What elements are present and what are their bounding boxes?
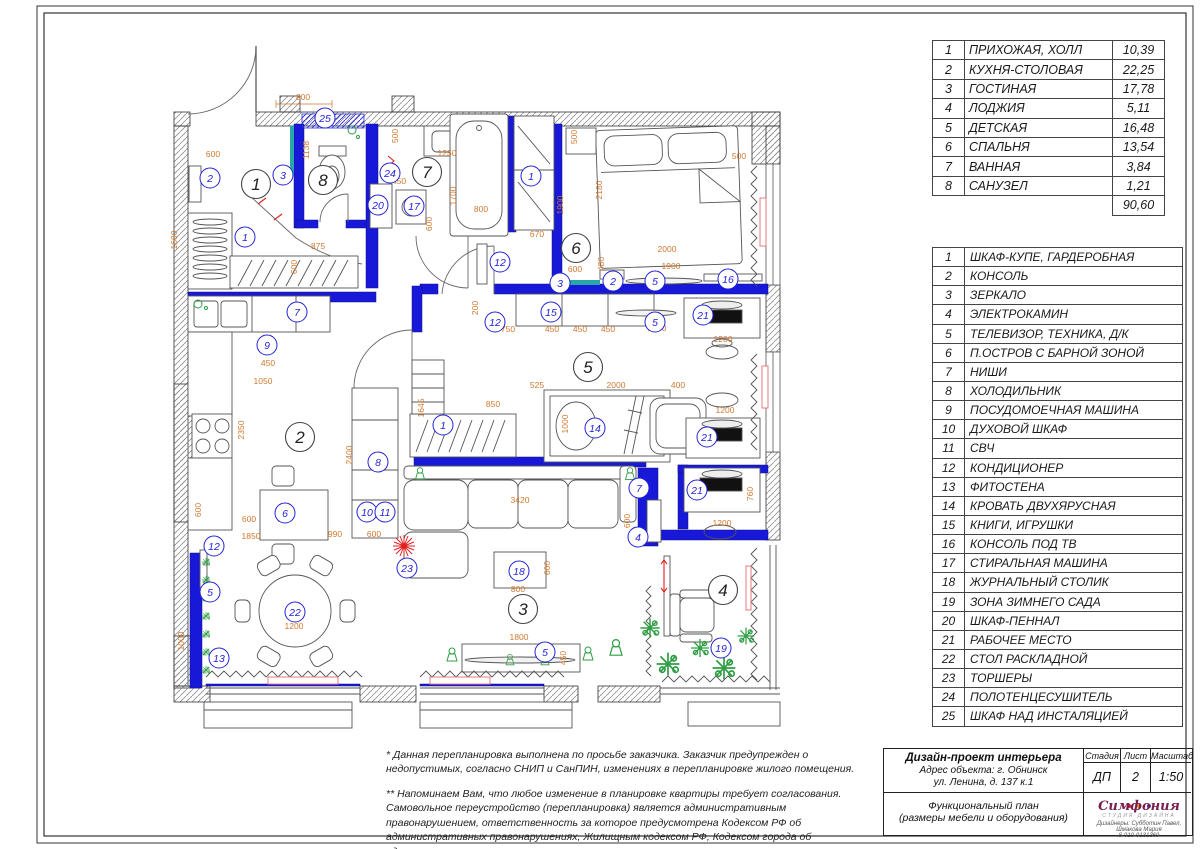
blank-cell — [933, 196, 1113, 215]
legend-table-cell: 25 — [933, 707, 965, 726]
rooms-table-cell: САНУЗЕЛ — [965, 176, 1113, 195]
legend-table-row: 15КНИГИ, ИГРУШКИ — [933, 515, 1183, 534]
legend-table-row: 14КРОВАТЬ ДВУХЯРУСНАЯ — [933, 496, 1183, 515]
item-number-label: 23 — [400, 563, 413, 575]
legend-table-cell: КОНСОЛЬ ПОД ТВ — [965, 535, 1183, 554]
legend-table-cell: 11 — [933, 439, 965, 458]
rooms-table-cell: 7 — [933, 157, 965, 176]
legend-table-row: 3ЗЕРКАЛО — [933, 286, 1183, 305]
studio-phone: 8-910-9131369 — [1084, 833, 1194, 840]
legend-table-cell: 4 — [933, 305, 965, 324]
studio-logo: Симфония СТУДИЯ ДИЗАЙНА Дизайнеры: Суббо… — [1084, 793, 1194, 835]
item-number-label: 10 — [361, 507, 373, 519]
rooms-table-cell: 16,48 — [1113, 118, 1165, 137]
dimension-label: 2000 — [658, 244, 677, 254]
legend-table-cell: КНИГИ, ИГРУШКИ — [965, 515, 1183, 534]
legend-table-cell: СТИРАЛЬНАЯ МАШИНА — [965, 554, 1183, 573]
item-number-label: 1 — [528, 171, 534, 183]
legend-table-row: 13ФИТОСТЕНА — [933, 477, 1183, 496]
dimension-label: 800 — [474, 204, 488, 214]
item-number-label: 4 — [635, 532, 641, 544]
dimension-label: 600 — [242, 514, 256, 524]
dimension-label: 1700 — [448, 186, 458, 205]
rooms-table-cell: 1,21 — [1113, 176, 1165, 195]
legend-table-cell: ШКАФ НАД ИНСТАЛЯЦИЕЙ — [965, 707, 1183, 726]
dimension-label: 1600 — [169, 230, 179, 249]
legend-table-cell: П.ОСТРОВ С БАРНОЙ ЗОНОЙ — [965, 343, 1183, 362]
legend-table-row: 22СТОЛ РАСКЛАДНОЙ — [933, 649, 1183, 668]
item-number-label: 6 — [282, 508, 288, 520]
legend-table-cell: 15 — [933, 515, 965, 534]
title-block: Дизайн-проект интерьера Адрес объекта: г… — [883, 748, 1193, 836]
legend-table-cell: 17 — [933, 554, 965, 573]
dimension-label: 400 — [671, 380, 685, 390]
legend-table-cell: ТЕЛЕВИЗОР, ТЕХНИКА, Д/К — [965, 324, 1183, 343]
rooms-table-cell: 1 — [933, 41, 965, 60]
rooms-table-cell: СПАЛЬНЯ — [965, 137, 1113, 156]
rooms-table-cell: 22,25 — [1113, 60, 1165, 79]
dimension-label: 1200 — [285, 621, 304, 631]
legend-table-cell: НИШИ — [965, 362, 1183, 381]
legend-table-cell: ЖУРНАЛЬНЫЙ СТОЛИК — [965, 573, 1183, 592]
project-address-line2: ул. Ленина, д. 137 к.1 — [884, 777, 1083, 788]
item-number-label: 16 — [722, 274, 734, 286]
rooms-table-cell: ВАННАЯ — [965, 157, 1113, 176]
item-number-label: 1 — [242, 232, 248, 244]
note-1: * Данная перепланировка выполнена по про… — [386, 748, 860, 777]
dimension-label: 2000 — [607, 380, 626, 390]
dimension-label: 1000 — [560, 414, 570, 433]
rooms-table-cell: 17,78 — [1113, 79, 1165, 98]
legend-table-row: 25ШКАФ НАД ИНСТАЛЯЦИЕЙ — [933, 707, 1183, 726]
furniture-legend-table: 1ШКАФ-КУПЕ, ГАРДЕРОБНАЯ2КОНСОЛЬ3ЗЕРКАЛО4… — [932, 247, 1183, 727]
dimension-label: 500 — [732, 151, 746, 161]
rooms-table-row: 1ПРИХОЖАЯ, ХОЛЛ10,39 — [933, 41, 1165, 60]
rooms-table-cell: 6 — [933, 137, 965, 156]
item-number-label: 1 — [440, 420, 446, 432]
legend-table-row: 17СТИРАЛЬНАЯ МАШИНА — [933, 554, 1183, 573]
legend-table-cell: ЗЕРКАЛО — [965, 286, 1183, 305]
dimension-label: 850 — [486, 399, 500, 409]
item-number-label: 3 — [280, 170, 286, 182]
dimension-label: 1200 — [716, 405, 735, 415]
item-number-label: 11 — [380, 507, 391, 519]
rooms-table-cell: ДЕТСКАЯ — [965, 118, 1113, 137]
studio-name: Симфония — [1084, 801, 1194, 812]
legend-table-row: 23ТОРШЕРЫ — [933, 669, 1183, 688]
dimension-label: 450 — [558, 651, 568, 665]
dimension-label: 1138 — [301, 141, 311, 160]
rooms-table-cell: 4 — [933, 99, 965, 118]
dimension-label: 600 — [622, 514, 632, 528]
legend-table-row: 12КОНДИЦИОНЕР — [933, 458, 1183, 477]
rooms-table-cell: 3,84 — [1113, 157, 1165, 176]
dimension-label: 800 — [511, 584, 525, 594]
dimension-label: 480 — [596, 257, 606, 271]
total-area-value: 90,60 — [1113, 196, 1165, 215]
rooms-table-row: 8САНУЗЕЛ1,21 — [933, 176, 1165, 195]
dimension-label: 450 — [545, 324, 559, 334]
legend-table-cell: 21 — [933, 630, 965, 649]
legend-table-cell: ПОЛОТЕНЦЕСУШИТЕЛЬ — [965, 688, 1183, 707]
dimension-label: 600 — [568, 264, 582, 274]
legend-table-cell: 23 — [933, 669, 965, 688]
rooms-table-cell: 5 — [933, 118, 965, 137]
scale-value: 1:50 — [1151, 763, 1191, 793]
legend-table-cell: 12 — [933, 458, 965, 477]
dimension-label: 200 — [470, 301, 480, 315]
legend-table-cell: ПОСУДОМОЕЧНАЯ МАШИНА — [965, 401, 1183, 420]
rooms-table-row: 7ВАННАЯ3,84 — [933, 157, 1165, 176]
dimension-label: 2350 — [236, 420, 246, 439]
legend-table-row: 5ТЕЛЕВИЗОР, ТЕХНИКА, Д/К — [933, 324, 1183, 343]
legend-table-cell: ЭЛЕКТРОКАМИН — [965, 305, 1183, 324]
item-number-label: 2 — [609, 276, 616, 288]
item-number-label: 9 — [264, 340, 270, 352]
item-number-label: 5 — [652, 276, 658, 288]
legend-table-cell: ШКАФ-ПЕННАЛ — [965, 611, 1183, 630]
dimension-label: 1050 — [254, 376, 273, 386]
dimension-label: 2400 — [344, 445, 354, 464]
drawing-sheet: 8006001138500125045017008006005001900670… — [0, 0, 1200, 849]
legend-table-row: 16КОНСОЛЬ ПОД ТВ — [933, 535, 1183, 554]
dimension-label: 1900 — [555, 195, 565, 214]
dimension-label: 600 — [193, 503, 203, 517]
dimension-label: 600 — [206, 149, 220, 159]
item-number-label: 8 — [375, 457, 381, 469]
legend-table-cell: 6 — [933, 343, 965, 362]
scale-label: Масштаб — [1151, 749, 1191, 763]
legend-table-row: 19ЗОНА ЗИМНЕГО САДА — [933, 592, 1183, 611]
room-number-label: 7 — [422, 163, 432, 182]
legend-table-row: 7НИШИ — [933, 362, 1183, 381]
legend-table-cell: 10 — [933, 420, 965, 439]
legend-table-cell: 16 — [933, 535, 965, 554]
legend-table-cell: КОНСОЛЬ — [965, 267, 1183, 286]
legend-table-row: 6П.ОСТРОВ С БАРНОЙ ЗОНОЙ — [933, 343, 1183, 362]
room-number-label: 8 — [318, 171, 328, 190]
dimension-label: 1250 — [438, 148, 457, 158]
item-number-label: 12 — [489, 317, 501, 329]
item-number-label: 3 — [557, 278, 563, 290]
rooms-table-row: 5ДЕТСКАЯ16,48 — [933, 118, 1165, 137]
legend-table-cell: КОНДИЦИОНЕР — [965, 458, 1183, 477]
rooms-table-row: 2КУХНЯ-СТОЛОВАЯ22,25 — [933, 60, 1165, 79]
legend-table-row: 10ДУХОВОЙ ШКАФ — [933, 420, 1183, 439]
rooms-table-total-row: 90,60 — [933, 196, 1165, 215]
legend-table-cell: 5 — [933, 324, 965, 343]
legend-table-row: 9ПОСУДОМОЕЧНАЯ МАШИНА — [933, 401, 1183, 420]
dimension-label: 525 — [530, 380, 544, 390]
dimension-label: 800 — [296, 92, 310, 102]
dimension-label: 450 — [601, 324, 615, 334]
floor-lamp-icon — [393, 535, 415, 557]
document-name-line2: (размеры мебели и оборудования) — [884, 812, 1083, 824]
document-name-line1: Функциональный план — [884, 800, 1083, 812]
item-number-label: 17 — [408, 201, 421, 213]
legend-table-row: 24ПОЛОТЕНЦЕСУШИТЕЛЬ — [933, 688, 1183, 707]
item-number-label: 5 — [207, 587, 213, 599]
dimension-label: 1000 — [176, 631, 186, 650]
item-number-label: 12 — [494, 257, 506, 269]
rooms-area-table: 1ПРИХОЖАЯ, ХОЛЛ10,392КУХНЯ-СТОЛОВАЯ22,25… — [932, 40, 1165, 216]
dimension-label: 670 — [530, 229, 544, 239]
stage-label: Стадия — [1084, 749, 1121, 763]
legend-table-cell: ДУХОВОЙ ШКАФ — [965, 420, 1183, 439]
dimension-label: 1200 — [714, 334, 733, 344]
item-number-label: 21 — [690, 485, 703, 497]
note-2: ** Напоминаем Вам, что любое изменение в… — [386, 787, 860, 849]
room-number-label: 5 — [583, 358, 593, 377]
item-number-label: 24 — [383, 168, 396, 180]
dimension-label: 600 — [289, 260, 299, 274]
document-name-cell: Функциональный план (размеры мебели и об… — [884, 793, 1084, 835]
item-number-label: 18 — [513, 566, 525, 578]
legend-table-row: 20ШКАФ-ПЕННАЛ — [933, 611, 1183, 630]
project-title: Дизайн-проект интерьера — [884, 752, 1083, 764]
item-number-label: 22 — [288, 607, 301, 619]
dimension-label: 500 — [569, 130, 579, 144]
room-number-label: 1 — [251, 175, 260, 194]
legend-table-cell: 1 — [933, 248, 965, 267]
project-title-cell: Дизайн-проект интерьера Адрес объекта: г… — [884, 749, 1084, 793]
rooms-table-row: 3ГОСТИНАЯ17,78 — [933, 79, 1165, 98]
item-number-label: 13 — [213, 653, 225, 665]
rooms-table-row: 6СПАЛЬНЯ13,54 — [933, 137, 1165, 156]
legend-table-row: 21РАБОЧЕЕ МЕСТО — [933, 630, 1183, 649]
legend-table-row: 2КОНСОЛЬ — [933, 267, 1183, 286]
dimension-label: 600 — [367, 529, 381, 539]
rooms-table-cell: 8 — [933, 176, 965, 195]
legend-table-row: 1ШКАФ-КУПЕ, ГАРДЕРОБНАЯ — [933, 248, 1183, 267]
dimension-label: 600 — [542, 561, 552, 575]
item-number-label: 5 — [652, 317, 658, 329]
dimension-label: 1850 — [242, 531, 261, 541]
legend-table-cell: 19 — [933, 592, 965, 611]
notes: * Данная перепланировка выполнена по про… — [386, 748, 860, 849]
legend-table-cell: 18 — [933, 573, 965, 592]
dimension-label: 2180 — [594, 180, 604, 199]
legend-table-cell: 13 — [933, 477, 965, 496]
rooms-table-cell: 5,11 — [1113, 99, 1165, 118]
dimension-label: 600 — [424, 217, 434, 231]
legend-table-cell: 24 — [933, 688, 965, 707]
dimension-label: 875 — [311, 241, 325, 251]
item-number-label: 15 — [545, 307, 557, 319]
dimension-label: 450 — [573, 324, 587, 334]
legend-table-row: 18ЖУРНАЛЬНЫЙ СТОЛИК — [933, 573, 1183, 592]
dimension-label: 500 — [390, 129, 400, 143]
item-number-label: 25 — [318, 113, 331, 125]
legend-table-cell: ТОРШЕРЫ — [965, 669, 1183, 688]
legend-table-cell: 8 — [933, 381, 965, 400]
rooms-table-cell: ПРИХОЖАЯ, ХОЛЛ — [965, 41, 1113, 60]
rooms-table-cell: 13,54 — [1113, 137, 1165, 156]
room-number-label: 2 — [294, 428, 305, 447]
dimension-label: 1645 — [416, 398, 426, 417]
item-number-label: 5 — [542, 647, 548, 659]
legend-table-row: 11СВЧ — [933, 439, 1183, 458]
item-number-label: 12 — [208, 541, 220, 553]
legend-table-row: 8ХОЛОДИЛЬНИК — [933, 381, 1183, 400]
legend-table-cell: 9 — [933, 401, 965, 420]
sheet-label: Лист — [1121, 749, 1151, 763]
sheet-value: 2 — [1121, 763, 1151, 793]
rooms-table-row: 4ЛОДЖИЯ5,11 — [933, 99, 1165, 118]
item-number-label: 14 — [589, 423, 601, 435]
legend-table-cell: ШКАФ-КУПЕ, ГАРДЕРОБНАЯ — [965, 248, 1183, 267]
legend-table-cell: ЗОНА ЗИМНЕГО САДА — [965, 592, 1183, 611]
legend-table-cell: КРОВАТЬ ДВУХЯРУСНАЯ — [965, 496, 1183, 515]
rooms-table-cell: 3 — [933, 79, 965, 98]
legend-table-cell: РАБОЧЕЕ МЕСТО — [965, 630, 1183, 649]
room-number-label: 6 — [571, 239, 581, 258]
stage-value: ДП — [1084, 763, 1121, 793]
legend-table-cell: 3 — [933, 286, 965, 305]
legend-table-cell: 14 — [933, 496, 965, 515]
legend-table-cell: 2 — [933, 267, 965, 286]
item-number-label: 19 — [715, 643, 727, 655]
rooms-table-cell: КУХНЯ-СТОЛОВАЯ — [965, 60, 1113, 79]
legend-table-row: 4ЭЛЕКТРОКАМИН — [933, 305, 1183, 324]
dimension-label: 1900 — [662, 261, 681, 271]
rooms-table-cell: ГОСТИНАЯ — [965, 79, 1113, 98]
rooms-table-cell: ЛОДЖИЯ — [965, 99, 1113, 118]
dimension-label: 1800 — [510, 632, 529, 642]
project-address-line1: Адрес объекта: г. Обнинск — [884, 765, 1083, 776]
legend-table-cell: 20 — [933, 611, 965, 630]
dimension-label: 990 — [328, 529, 342, 539]
room-number-label: 3 — [518, 600, 528, 619]
item-number-label: 21 — [700, 432, 713, 444]
room-number-label: 4 — [718, 581, 727, 600]
item-number-label: 2 — [206, 173, 213, 185]
legend-table-cell: ХОЛОДИЛЬНИК — [965, 381, 1183, 400]
doors — [188, 46, 494, 388]
dimension-label: 1200 — [713, 518, 732, 528]
legend-table-cell: СВЧ — [965, 439, 1183, 458]
designers-line: Дизайнеры: Субботин Павел, Шмакова Мария — [1084, 821, 1194, 833]
dimension-label: 3420 — [511, 495, 530, 505]
dimension-label: 760 — [745, 487, 755, 501]
legend-table-cell: СТОЛ РАСКЛАДНОЙ — [965, 649, 1183, 668]
item-number-label: 21 — [696, 310, 709, 322]
rooms-table-cell: 10,39 — [1113, 41, 1165, 60]
item-number-label: 20 — [371, 200, 384, 212]
rooms-table-cell: 2 — [933, 60, 965, 79]
dimension-label: 450 — [261, 358, 275, 368]
legend-table-cell: 22 — [933, 649, 965, 668]
legend-table-cell: 7 — [933, 362, 965, 381]
legend-table-cell: ФИТОСТЕНА — [965, 477, 1183, 496]
